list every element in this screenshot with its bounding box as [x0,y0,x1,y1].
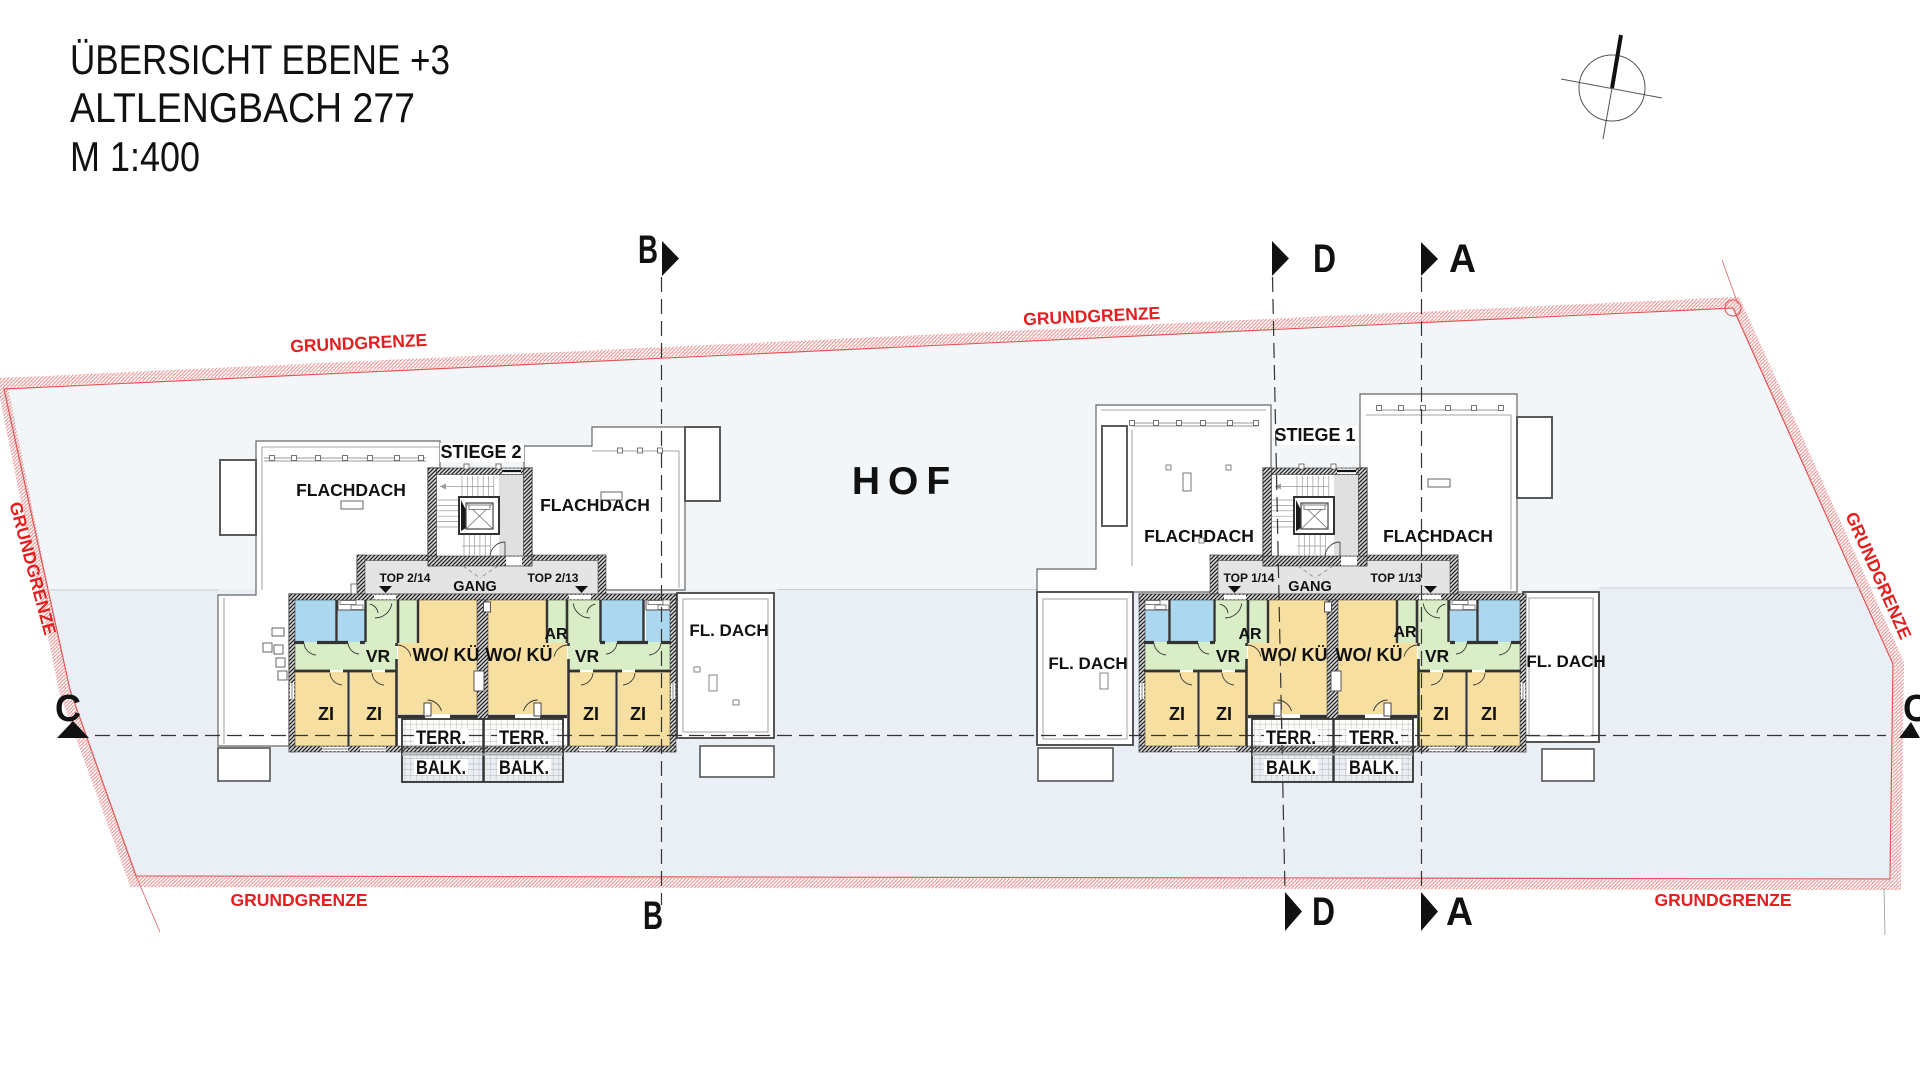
svg-text:WO/ KÜ: WO/ KÜ [413,645,480,665]
svg-text:M 1:400: M 1:400 [70,133,200,180]
svg-text:GANG: GANG [1288,579,1332,595]
svg-text:D: D [1312,890,1335,934]
svg-text:BALK.: BALK. [499,758,549,779]
svg-text:A: A [1446,890,1473,934]
svg-text:ZI: ZI [1169,704,1185,724]
svg-text:AR: AR [1393,624,1417,641]
svg-text:BALK.: BALK. [416,758,466,779]
svg-text:GRUNDGRENZE: GRUNDGRENZE [230,890,367,910]
svg-text:FL. DACH: FL. DACH [1048,654,1127,673]
svg-text:ALTLENGBACH 277: ALTLENGBACH 277 [70,84,415,131]
svg-text:ZI: ZI [1433,704,1449,724]
svg-text:WO/ KÜ: WO/ KÜ [1336,645,1403,665]
svg-text:WO/ KÜ: WO/ KÜ [486,645,553,665]
svg-text:HOF: HOF [852,460,958,503]
svg-text:TOP 2/13: TOP 2/13 [528,571,579,585]
svg-text:TERR.: TERR. [416,728,466,749]
svg-text:BALK.: BALK. [1349,758,1399,779]
svg-text:FLACHDACH: FLACHDACH [296,480,406,500]
svg-text:TOP 1/13: TOP 1/13 [1371,571,1422,585]
svg-text:GANG: GANG [453,579,497,595]
svg-text:GRUNDGRENZE: GRUNDGRENZE [1654,890,1791,910]
svg-text:TERR.: TERR. [499,728,549,749]
svg-text:A: A [1449,237,1476,281]
svg-text:AR: AR [544,626,568,643]
svg-text:FL. DACH: FL. DACH [1526,652,1605,671]
svg-text:VR: VR [366,646,391,666]
svg-text:TOP 2/14: TOP 2/14 [380,571,431,585]
svg-text:B: B [643,894,663,938]
svg-text:TERR.: TERR. [1266,728,1316,749]
svg-text:FL. DACH: FL. DACH [689,621,768,640]
svg-text:STIEGE 1: STIEGE 1 [1274,425,1355,445]
svg-text:VR: VR [1216,646,1241,666]
svg-text:FLACHDACH: FLACHDACH [1383,526,1493,546]
svg-text:TOP 1/14: TOP 1/14 [1224,571,1275,585]
svg-text:VR: VR [1425,646,1450,666]
svg-text:FLACHDACH: FLACHDACH [540,495,650,515]
svg-text:B: B [638,228,658,272]
svg-text:D: D [1313,237,1336,281]
svg-text:C: C [55,688,81,730]
svg-text:BALK.: BALK. [1266,758,1316,779]
svg-text:ZI: ZI [1216,704,1232,724]
svg-text:ZI: ZI [1481,704,1497,724]
svg-text:STIEGE 2: STIEGE 2 [440,442,521,462]
svg-text:ÜBERSICHT EBENE +3: ÜBERSICHT EBENE +3 [70,36,450,83]
svg-text:WO/ KÜ: WO/ KÜ [1261,645,1328,665]
svg-text:ZI: ZI [583,704,599,724]
svg-text:ZI: ZI [630,704,646,724]
svg-text:TERR.: TERR. [1349,728,1399,749]
svg-text:VR: VR [575,646,600,666]
svg-text:ZI: ZI [366,704,382,724]
svg-text:AR: AR [1238,626,1262,643]
svg-text:ZI: ZI [318,704,334,724]
